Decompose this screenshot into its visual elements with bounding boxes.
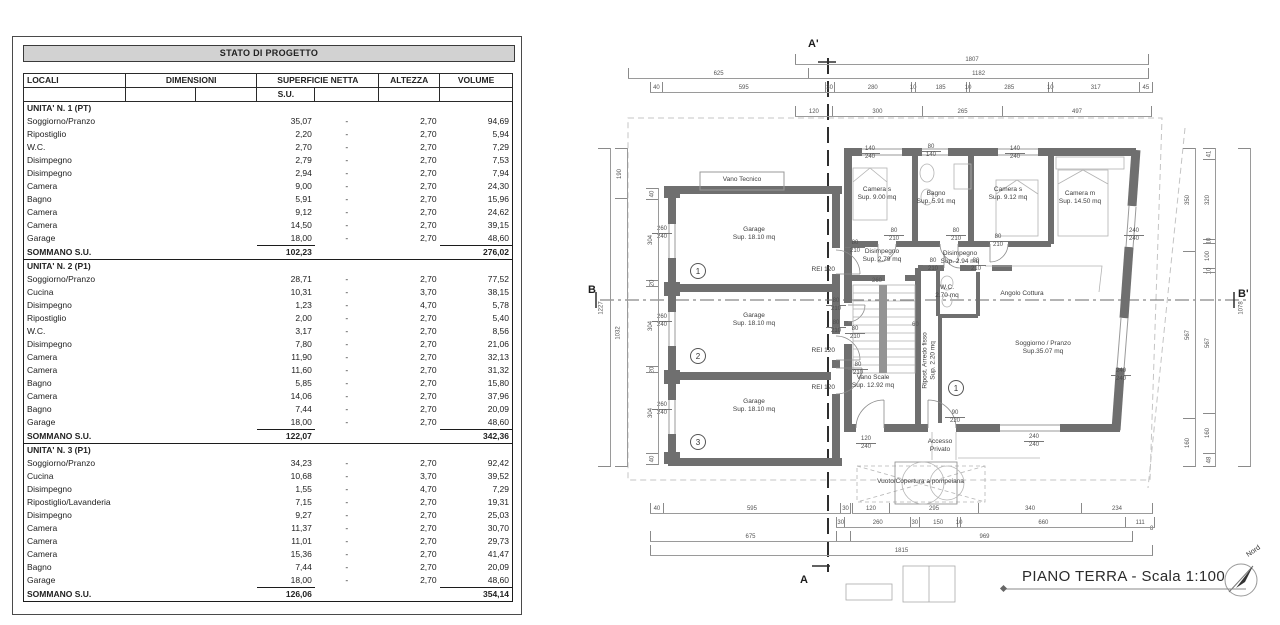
unit-badge-3: 3 bbox=[690, 434, 706, 450]
dim-chain-right-2: 41320101001056716048 bbox=[1203, 148, 1216, 467]
door-callout: 80210 bbox=[845, 326, 865, 341]
door-callout: 80210 bbox=[966, 258, 986, 273]
room-label-angolo-cottura: Angolo Cottura bbox=[980, 290, 1064, 298]
drawing-sheet: { "colors": { "wall": "#6f6f6f", "table_… bbox=[0, 0, 1280, 625]
dim-chain-left-3: 40304203042030440 bbox=[646, 188, 659, 465]
door-callout: 80210 bbox=[988, 234, 1008, 249]
door-callout: 120240 bbox=[856, 436, 876, 451]
window-callout: 140240 bbox=[1005, 146, 1025, 161]
window-callout: 240240 bbox=[1024, 434, 1044, 449]
dim-chain-bottom-4: 1815 bbox=[650, 545, 1153, 556]
dim-chain-bottom-3-left: 675 bbox=[650, 531, 851, 542]
door-callout: 80210 bbox=[826, 298, 846, 313]
dim-chain-top-2: 6251182 bbox=[628, 68, 1149, 79]
dim-chain-bottom-3: 969 bbox=[836, 531, 1133, 542]
dim-chain-bottom-1: 120295340234 bbox=[852, 503, 1153, 514]
title-underline bbox=[1000, 585, 1246, 592]
dim-chain-right-1: 350567160 bbox=[1183, 148, 1196, 467]
label-accesso-privato: AccessoPrivato bbox=[912, 438, 968, 455]
room-label-garage-2: GarageSup. 18.10 mq bbox=[712, 312, 796, 329]
dim-chain-left-1: 1227 bbox=[598, 148, 611, 467]
north-compass bbox=[1225, 564, 1257, 596]
door-callout: 80210 bbox=[946, 228, 966, 243]
door-callout: 80210 bbox=[923, 258, 943, 273]
stair-gap-dim: 60 bbox=[912, 322, 919, 328]
room-label-ripostiglio: Ripost. Arredo fissoSup. 2.20 mq bbox=[922, 315, 939, 405]
room-label-vano-scale: Vano ScaleSup. 12.92 mq bbox=[833, 374, 913, 391]
fire-rating-label-1: REI 120 bbox=[797, 266, 835, 273]
window-callout: 240240 bbox=[1111, 368, 1131, 383]
window-callout: 240240 bbox=[1124, 228, 1144, 243]
dim-chain-top-3: 405953028010185102851031745 bbox=[650, 82, 1153, 93]
dim-chain-bottom-2: 302603015010660111 bbox=[836, 517, 1155, 528]
room-label-camera-m: Camera mSup. 14.50 mq bbox=[1036, 190, 1124, 207]
stair-width-dim: 260 bbox=[872, 278, 882, 284]
room-label-garage-1: GarageSup. 18.10 mq bbox=[712, 226, 796, 243]
section-marker-b-left: B bbox=[588, 284, 596, 296]
entry-badge-1: 1 bbox=[948, 380, 964, 396]
label-vuoto-copertura: Vuoto/Copertura a pompeiana bbox=[853, 478, 988, 486]
section-marker-a-top: A' bbox=[808, 38, 819, 50]
plan-title: PIANO TERRA - Scala 1:100 bbox=[1022, 568, 1225, 585]
door-callout: 90220 bbox=[945, 410, 965, 425]
room-label-vano-tecnico: Vano Tecnico bbox=[702, 176, 782, 184]
dim-chain-top-1: 1807 bbox=[795, 54, 1149, 65]
unit-badge-2: 2 bbox=[690, 348, 706, 364]
door-callout: 80210 bbox=[848, 362, 868, 377]
door-callout: 80210 bbox=[884, 228, 904, 243]
dim-chain-bottom-1-left: 4059530 bbox=[650, 503, 851, 514]
unit-badge-1: 1 bbox=[690, 263, 706, 279]
fire-rating-label-2: REI 120 bbox=[797, 347, 835, 354]
boundary-dashed bbox=[628, 118, 1185, 488]
door-callout: 80210 bbox=[845, 240, 865, 255]
window-callout: 80140 bbox=[921, 144, 941, 159]
room-label-wc: W.C.2.70 mq bbox=[925, 284, 969, 301]
fire-rating-label-3: REI 120 bbox=[797, 384, 835, 391]
dim-chain-left-2: 1901032 bbox=[615, 148, 628, 467]
section-marker-a-bottom: A bbox=[800, 574, 808, 586]
room-label-garage-3: GarageSup. 18.10 mq bbox=[712, 398, 796, 415]
door-callout: 80210 bbox=[826, 320, 846, 335]
dim-chain-right-3: 1078 bbox=[1238, 148, 1251, 467]
room-label-bagno: BagnoSup. 5.91 mq bbox=[906, 190, 966, 207]
room-label-camera-s1: Camera sSup. 9.00 mq bbox=[842, 186, 912, 203]
window-callout: 140240 bbox=[860, 146, 880, 161]
room-label-soggiorno: Soggiorno / PranzoSup.35.07 mq bbox=[988, 340, 1098, 357]
dim-chain-top-4: 120300265497 bbox=[795, 106, 1152, 117]
